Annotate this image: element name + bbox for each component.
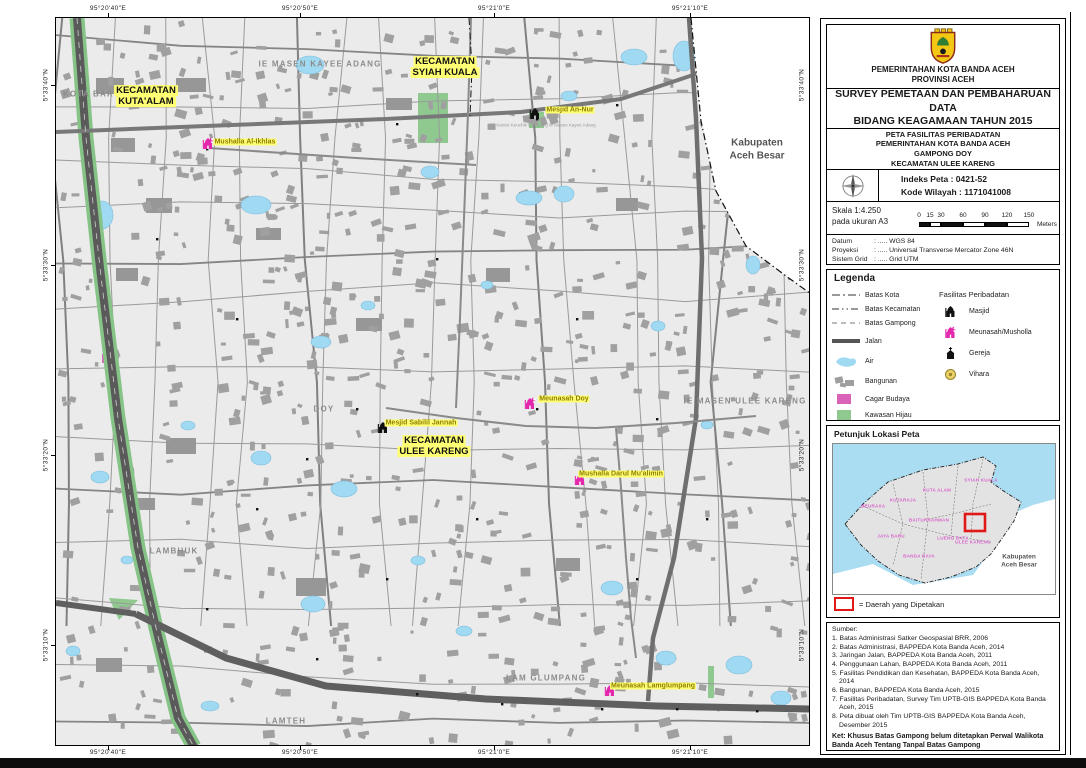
source-item: 2. Batas Administrasi, BAPPEDA Kota Band… bbox=[832, 644, 1054, 653]
coordinate-label: 5°33'10"N bbox=[43, 629, 50, 662]
coordinate-label: 5°33'30"N bbox=[43, 249, 50, 282]
compass-cell bbox=[827, 170, 879, 201]
source-item: 1. Batas Administrasi Satker Geospasial … bbox=[832, 635, 1054, 644]
bangunan-symbol bbox=[831, 374, 861, 388]
scale-bar-segment bbox=[919, 222, 930, 227]
legend-item-batas-kecamatan: Batas Kecamatan bbox=[831, 302, 920, 316]
legend-item-fasilitas-vihara: Vihara bbox=[935, 367, 989, 381]
cagar-budaya-symbol bbox=[831, 393, 861, 405]
fasilitas-meunasah-symbol bbox=[935, 326, 965, 339]
sources-list: 1. Batas Administrasi Satker Geospasial … bbox=[832, 635, 1054, 731]
scale-bar-segment bbox=[1007, 222, 1029, 227]
scale-tick-label: 0 bbox=[917, 212, 921, 219]
inset-district-label: MEURAXA bbox=[861, 504, 886, 509]
scale-tick-label: 150 bbox=[1024, 212, 1035, 219]
legend-item-kawasan-hijau: Kawasan Hijau bbox=[831, 408, 912, 422]
inset-note-text: = Daerah yang Dipetakan bbox=[859, 600, 944, 609]
sources-title: Sumber: bbox=[832, 626, 1054, 635]
legend-item-air: Air bbox=[831, 354, 874, 368]
red-box-icon bbox=[834, 597, 854, 611]
legend: Legenda Batas KotaBatas KecamatanBatas G… bbox=[826, 269, 1060, 421]
survey-title-line1: SURVEY PEMETAAN DAN PEMBAHARUAN DATA bbox=[827, 88, 1059, 115]
batas-kecamatan-symbol bbox=[831, 306, 861, 312]
map-drawing bbox=[56, 18, 810, 746]
survey-title-line2: BIDANG KEAGAMAAN TAHUN 2015 bbox=[827, 115, 1059, 129]
fasilitas-gereja-symbol bbox=[935, 347, 965, 360]
agency-header: PEMERINTAHAN KOTA BANDA ACEH PROVINSI AC… bbox=[827, 25, 1059, 89]
legend-item-batas-kota: Batas Kota bbox=[831, 288, 899, 302]
legend-item-fasilitas-masjid: Masjid bbox=[935, 304, 989, 318]
scale-bar-segment bbox=[963, 222, 985, 227]
indeks-peta: Indeks Peta : 0421-52 bbox=[901, 173, 1059, 185]
source-item: 6. Bangunan, BAPPEDA Kota Banda Aceh, 20… bbox=[832, 687, 1054, 696]
batas-gampong-symbol bbox=[831, 320, 861, 326]
legend-item-fasilitas-meunasah: Meunasah/Musholla bbox=[935, 325, 1032, 339]
scale-unit: Meters bbox=[1037, 221, 1057, 228]
map-canvas bbox=[55, 17, 810, 746]
source-item: 3. Jaringan Jalan, BAPPEDA Kota Banda Ac… bbox=[832, 652, 1054, 661]
coordinate-label: 95°20'50"E bbox=[282, 749, 318, 756]
jalan-symbol bbox=[831, 338, 861, 344]
inset-district-label: KUTARAJA bbox=[890, 498, 917, 503]
map-sheet: 95°20'40"E95°20'50"E95°21'0"E95°21'10"E9… bbox=[0, 0, 1086, 768]
index-row: Indeks Peta : 0421-52 Kode Wilayah : 117… bbox=[827, 170, 1059, 202]
coordinate-label: 5°33'20"N bbox=[43, 439, 50, 472]
legend-item-cagar-budaya: Cagar Budaya bbox=[831, 392, 910, 406]
datum-row: Sistem Grid: ..... Grid UTM bbox=[832, 255, 1054, 264]
scale-tick-label: 90 bbox=[981, 212, 988, 219]
inset-district-label: SYIAH KUALA bbox=[964, 478, 998, 483]
map-marginalia-panel: PEMERINTAHAN KOTA BANDA ACEH PROVINSI AC… bbox=[820, 18, 1066, 755]
datum-row: Proyeksi: ..... Universal Transverse Mer… bbox=[832, 246, 1054, 255]
org-name: PEMERINTAHAN KOTA BANDA ACEH bbox=[827, 65, 1059, 75]
legend-item-fasilitas-gereja: Gereja bbox=[935, 346, 990, 360]
banda-aceh-crest-logo bbox=[927, 28, 959, 64]
scale-row: Skala 1:4.250 pada ukuran A3 01530609012… bbox=[827, 202, 1059, 235]
coordinate-label: 95°20'40"E bbox=[90, 5, 126, 12]
subtitle-line: GAMPONG DOY bbox=[827, 149, 1059, 159]
scale-tick-label: 15 bbox=[926, 212, 933, 219]
page-edge-line bbox=[1070, 12, 1071, 755]
scale-bar: 015306090120150Meters bbox=[919, 216, 1051, 221]
datum-block: Datum: ..... WGS 84Proyeksi: ..... Unive… bbox=[827, 235, 1059, 265]
fasilitas-title: Fasilitas Peribadatan bbox=[939, 290, 1009, 299]
scale-bar-segment bbox=[930, 222, 941, 227]
source-item: 7. Fasilitas Peribadatan, Survey Tim UPT… bbox=[832, 696, 1054, 713]
scale-tick-label: 60 bbox=[959, 212, 966, 219]
batas-kota-symbol bbox=[831, 292, 861, 298]
inset-district-label: BAITURRAHMAN bbox=[909, 518, 949, 523]
inset-legend-note: = Daerah yang Dipetakan bbox=[834, 597, 944, 611]
coordinate-label: 95°20'40"E bbox=[90, 749, 126, 756]
sources: Sumber: 1. Batas Administrasi Satker Geo… bbox=[826, 622, 1060, 751]
location-inset: Petunjuk Lokasi Peta Ka bbox=[826, 425, 1060, 618]
coordinate-label: 95°21'0"E bbox=[478, 749, 510, 756]
coordinate-label: 5°33'40"N bbox=[43, 69, 50, 102]
scale-text: Skala 1:4.250 pada ukuran A3 bbox=[832, 206, 888, 228]
note-line2: Banda Aceh Tentang Tanpal Batas Gampong bbox=[832, 741, 1054, 750]
scale-ratio: Skala 1:4.250 bbox=[832, 206, 888, 217]
legend-title: Legenda bbox=[834, 273, 875, 284]
source-item: 8. Peta dibuat oleh Tim UPTB-GIS BAPPEDA… bbox=[832, 713, 1054, 730]
scale-bar-segment bbox=[941, 222, 963, 227]
subtitle-line: PEMERINTAHAN KOTA BANDA ACEH bbox=[827, 139, 1059, 149]
scale-tick-label: 120 bbox=[1002, 212, 1013, 219]
air-symbol bbox=[831, 354, 861, 368]
coordinate-label: 95°21'10"E bbox=[672, 5, 708, 12]
subtitle-line: KECAMATAN ULEE KARENG bbox=[827, 159, 1059, 169]
legend-item-batas-gampong: Batas Gampong bbox=[831, 316, 916, 330]
kawasan-hijau-symbol bbox=[831, 409, 861, 421]
legend-item-bangunan: Bangunan bbox=[831, 374, 897, 388]
map-subtitle: PETA FASILITAS PERIBADATANPEMERINTAHAN K… bbox=[827, 129, 1059, 170]
source-item: 4. Penggunaan Lahan, BAPPEDA Kota Banda … bbox=[832, 661, 1054, 670]
inset-district-label: BANDA RAYA bbox=[903, 554, 935, 559]
note-line1: Ket: Khusus Batas Gampong belum ditetapk… bbox=[832, 732, 1054, 741]
coordinate-label: 95°21'10"E bbox=[672, 749, 708, 756]
kode-wilayah: Kode Wilayah : 1171041008 bbox=[901, 186, 1059, 198]
coordinate-label: 95°20'50"E bbox=[282, 5, 318, 12]
inset-map: KabupatenAceh Besar SYIAH KUALAKUTA ALAM… bbox=[832, 443, 1056, 595]
scale-paper: pada ukuran A3 bbox=[832, 217, 888, 228]
title-block: PEMERINTAHAN KOTA BANDA ACEH PROVINSI AC… bbox=[826, 24, 1060, 265]
org-province: PROVINSI ACEH bbox=[827, 75, 1059, 85]
inset-district-label: JAYA BARU bbox=[877, 534, 905, 539]
datum-row: Datum: ..... WGS 84 bbox=[832, 237, 1054, 246]
coordinate-label: 95°21'0"E bbox=[478, 5, 510, 12]
inset-title: Petunjuk Lokasi Peta bbox=[834, 429, 920, 439]
scale-tick-label: 30 bbox=[937, 212, 944, 219]
inset-district-label: ULEE KARENG bbox=[955, 540, 991, 545]
scale-bar-segment bbox=[985, 222, 1007, 227]
source-item: 5. Fasilitas Pendidikan dan Kesehatan, B… bbox=[832, 670, 1054, 687]
fasilitas-masjid-symbol bbox=[935, 305, 965, 318]
fasilitas-vihara-symbol bbox=[935, 368, 965, 381]
inset-outside-label: KabupatenAceh Besar bbox=[1001, 554, 1037, 571]
subtitle-line: PETA FASILITAS PERIBADATAN bbox=[827, 130, 1059, 140]
inset-district-label: KUTA ALAM bbox=[923, 488, 951, 493]
scan-bottom-band bbox=[0, 758, 1086, 768]
legend-item-jalan: Jalan bbox=[831, 334, 882, 348]
survey-title: SURVEY PEMETAAN DAN PEMBAHARUAN DATA BID… bbox=[827, 89, 1059, 129]
compass-rose-icon bbox=[840, 173, 866, 199]
index-values: Indeks Peta : 0421-52 Kode Wilayah : 117… bbox=[879, 170, 1059, 201]
